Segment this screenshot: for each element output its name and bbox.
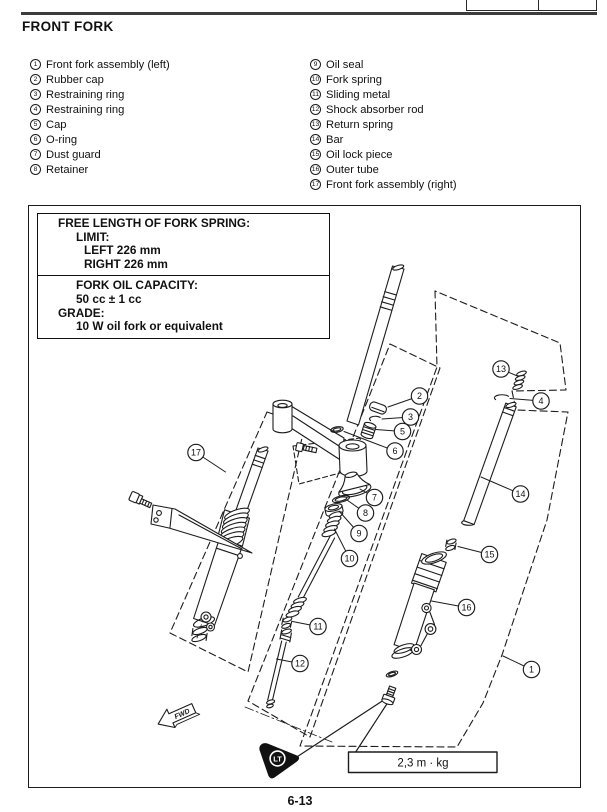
part-number-badge: 3 (30, 89, 41, 100)
part-label: Retainer (46, 164, 88, 176)
shock-absorber-rod-part (266, 628, 292, 708)
spec-line: LEFT 226 mm (38, 244, 325, 258)
callout-number: 13 (496, 364, 506, 374)
callout-number: 7 (372, 493, 377, 503)
rubber-cap-part (368, 401, 387, 415)
bar-part (462, 401, 517, 525)
callout-number: 16 (461, 603, 471, 613)
part-label: O-ring (46, 134, 77, 146)
spec-section-oil: FORK OIL CAPACITY:50 cc ± 1 ccGRADE:10 W… (38, 275, 329, 337)
part-number-badge: 15 (310, 149, 321, 160)
sliding-metal-part (281, 616, 292, 629)
part-label: Sliding metal (326, 89, 390, 101)
header-table-cell-left (466, 0, 540, 11)
part-list-item: 14Bar (310, 132, 457, 147)
part-list-item: 1Front fork assembly (left) (30, 57, 170, 72)
part-label: Oil lock piece (326, 149, 393, 161)
part-label: Cap (46, 119, 67, 131)
spec-line: 50 cc ± 1 cc (38, 293, 325, 307)
part-label: Bar (326, 134, 343, 146)
outer-tube-part (391, 549, 448, 660)
part-number-badge: 17 (310, 179, 321, 190)
part-list-item: 6O-ring (30, 132, 170, 147)
drain-screw-part (381, 685, 398, 706)
part-list-item: 12Shock absorber rod (310, 102, 457, 117)
part-label: Shock absorber rod (326, 104, 424, 116)
part-number-badge: 8 (30, 164, 41, 175)
part-number-badge: 12 (310, 104, 321, 115)
callout-number: 3 (408, 412, 413, 422)
bracket-bolt (129, 491, 153, 509)
callout-number: 10 (344, 554, 354, 564)
part-number-badge: 11 (310, 89, 321, 100)
spec-line: RIGHT 226 mm (38, 258, 325, 272)
part-label: Return spring (326, 119, 393, 131)
part-list-item: 3Restraining ring (30, 87, 170, 102)
part-number-badge: 5 (30, 119, 41, 130)
part-label: Front fork assembly (left) (46, 59, 170, 71)
part-number-badge: 13 (310, 119, 321, 130)
part-label: Oil seal (326, 59, 363, 71)
spec-box: FREE LENGTH OF FORK SPRING:LIMIT:LEFT 22… (37, 213, 330, 339)
torque-value: 2,3 m · kg (397, 758, 448, 770)
part-label: Rubber cap (46, 74, 104, 86)
part-list-item: 15Oil lock piece (310, 147, 457, 162)
part-list-item: 10Fork spring (310, 72, 457, 87)
oil-lock-piece-part (445, 538, 457, 552)
part-number-badge: 10 (310, 74, 321, 85)
part-list-item: 7Dust guard (30, 147, 170, 162)
part-number-badge: 7 (30, 149, 41, 160)
callout-number: 11 (313, 622, 322, 632)
part-label: Outer tube (326, 164, 379, 176)
part-list-item: 13Return spring (310, 117, 457, 132)
part-list-item: 8Retainer (30, 162, 170, 177)
header-table-cell-right (538, 0, 597, 11)
spec-line: 10 W oil fork or equivalent (38, 320, 325, 334)
callout-number: 5 (400, 427, 405, 437)
part-label: Restraining ring (46, 89, 124, 101)
restraining-ring-part (370, 416, 381, 420)
page-number: 6-13 (265, 794, 335, 808)
part-number-badge: 16 (310, 164, 321, 175)
part-number-badge: 4 (30, 104, 41, 115)
part-list-item: 4Restraining ring (30, 102, 170, 117)
part-list-item: 17Front fork assembly (right) (310, 177, 457, 192)
fork-spring-part (285, 510, 343, 618)
part-list-item: 9Oil seal (310, 57, 457, 72)
part-list-item: 2Rubber cap (30, 72, 170, 87)
fwd-arrow: FWD (154, 698, 201, 733)
part-number-badge: 14 (310, 134, 321, 145)
header-rule (21, 12, 597, 15)
loctite-label: LT (273, 754, 282, 763)
spec-section-fork-spring: FREE LENGTH OF FORK SPRING:LIMIT:LEFT 22… (38, 214, 329, 275)
callout-number: 15 (484, 550, 494, 560)
return-spring-part (512, 370, 527, 390)
part-list-item: 11Sliding metal (310, 87, 457, 102)
callout-number: 17 (191, 448, 201, 458)
cap-part (360, 421, 376, 440)
callout-number: 8 (363, 508, 368, 518)
page-title: FRONT FORK (22, 19, 114, 34)
parts-list-right-column: 9Oil seal10Fork spring11Sliding metal12S… (310, 57, 457, 192)
callout-number: 9 (356, 529, 361, 539)
part-number-badge: 9 (310, 59, 321, 70)
gasket-ring-part (386, 670, 399, 678)
callout-number: 6 (392, 446, 397, 456)
part-number-badge: 6 (30, 134, 41, 145)
retainer-part (332, 494, 350, 504)
part-number-badge: 1 (30, 59, 41, 70)
spec-line: GRADE: (38, 307, 325, 321)
parts-list-left-column: 1Front fork assembly (left)2Rubber cap3R… (30, 57, 170, 177)
loctite-leader-lines (296, 702, 387, 758)
part-list-item: 5Cap (30, 117, 170, 132)
restraining-ring-right-part (494, 395, 508, 400)
spec-line: FORK OIL CAPACITY: (38, 279, 325, 293)
loctite-symbol: LT (259, 743, 299, 778)
part-number-badge: 2 (30, 74, 41, 85)
left-fork-assembly (129, 446, 269, 643)
spec-line: LIMIT: (38, 231, 325, 245)
part-label: Restraining ring (46, 104, 124, 116)
callout-number: 4 (538, 396, 543, 406)
callout-number: 12 (295, 659, 305, 669)
steering-stem (347, 264, 404, 425)
part-label: Dust guard (46, 149, 101, 161)
callout-number: 1 (529, 665, 534, 675)
part-list-item: 16Outer tube (310, 162, 457, 177)
torque-spec-box: 2,3 m · kg (349, 752, 498, 773)
callout-number: 2 (417, 391, 422, 401)
spec-line: FREE LENGTH OF FORK SPRING: (38, 217, 325, 231)
o-ring-part (330, 426, 343, 434)
part-label: Front fork assembly (right) (326, 179, 457, 191)
callout-number: 14 (515, 489, 525, 499)
part-label: Fork spring (326, 74, 382, 86)
